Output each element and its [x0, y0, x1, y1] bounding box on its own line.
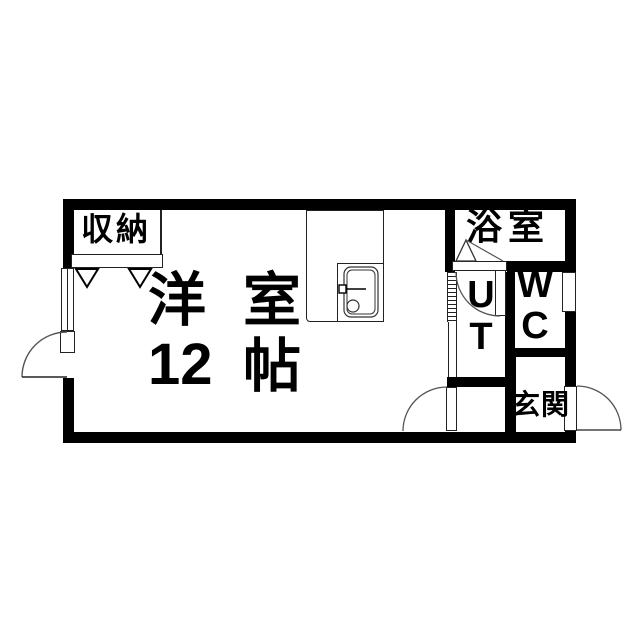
main-room-name-char1: 洋	[148, 272, 206, 330]
closet-door-triangle-1	[76, 269, 98, 287]
bathroom-label: 浴室	[450, 209, 566, 245]
main-room-size-unit: 帖	[243, 338, 301, 396]
room-door-arc	[403, 387, 447, 431]
utility-label-line2: T	[458, 318, 504, 356]
entrance-door-arc	[577, 386, 621, 430]
toilet-label-line1: W	[508, 266, 562, 304]
main-room-size-number: 12	[148, 336, 213, 394]
utility-label-line1: U	[458, 276, 504, 314]
main-room-name-char2: 室	[243, 272, 301, 330]
entrance-label: 玄関	[512, 391, 570, 419]
sink-outer	[344, 267, 378, 317]
closet-label: 収納	[70, 213, 162, 245]
sink-faucet-icon	[339, 285, 346, 293]
left-door-arc	[22, 332, 67, 377]
toilet-label-line2: C	[508, 307, 562, 345]
floor-plan: 収納 洋 室 12 帖 浴室 U T W C 玄関	[0, 0, 640, 640]
